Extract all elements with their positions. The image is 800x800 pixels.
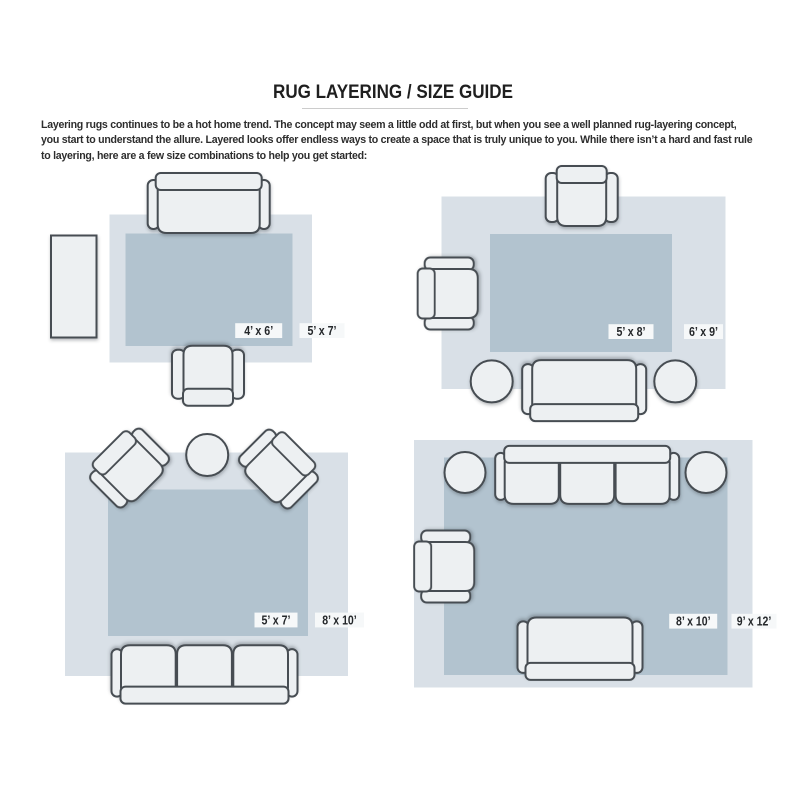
svg-text:6’ x 9’: 6’ x 9’ [689,325,718,339]
svg-text:5’ x 7’: 5’ x 7’ [262,613,291,627]
svg-text:8’ x 10’: 8’ x 10’ [676,615,711,629]
svg-text:4’ x 6’: 4’ x 6’ [244,324,273,338]
svg-text:5’ x 7’: 5’ x 7’ [308,324,337,338]
svg-text:5’ x 8’: 5’ x 8’ [617,325,646,339]
svg-text:9’ x 12’: 9’ x 12’ [737,615,772,629]
svg-text:8’ x 10’: 8’ x 10’ [322,613,357,627]
